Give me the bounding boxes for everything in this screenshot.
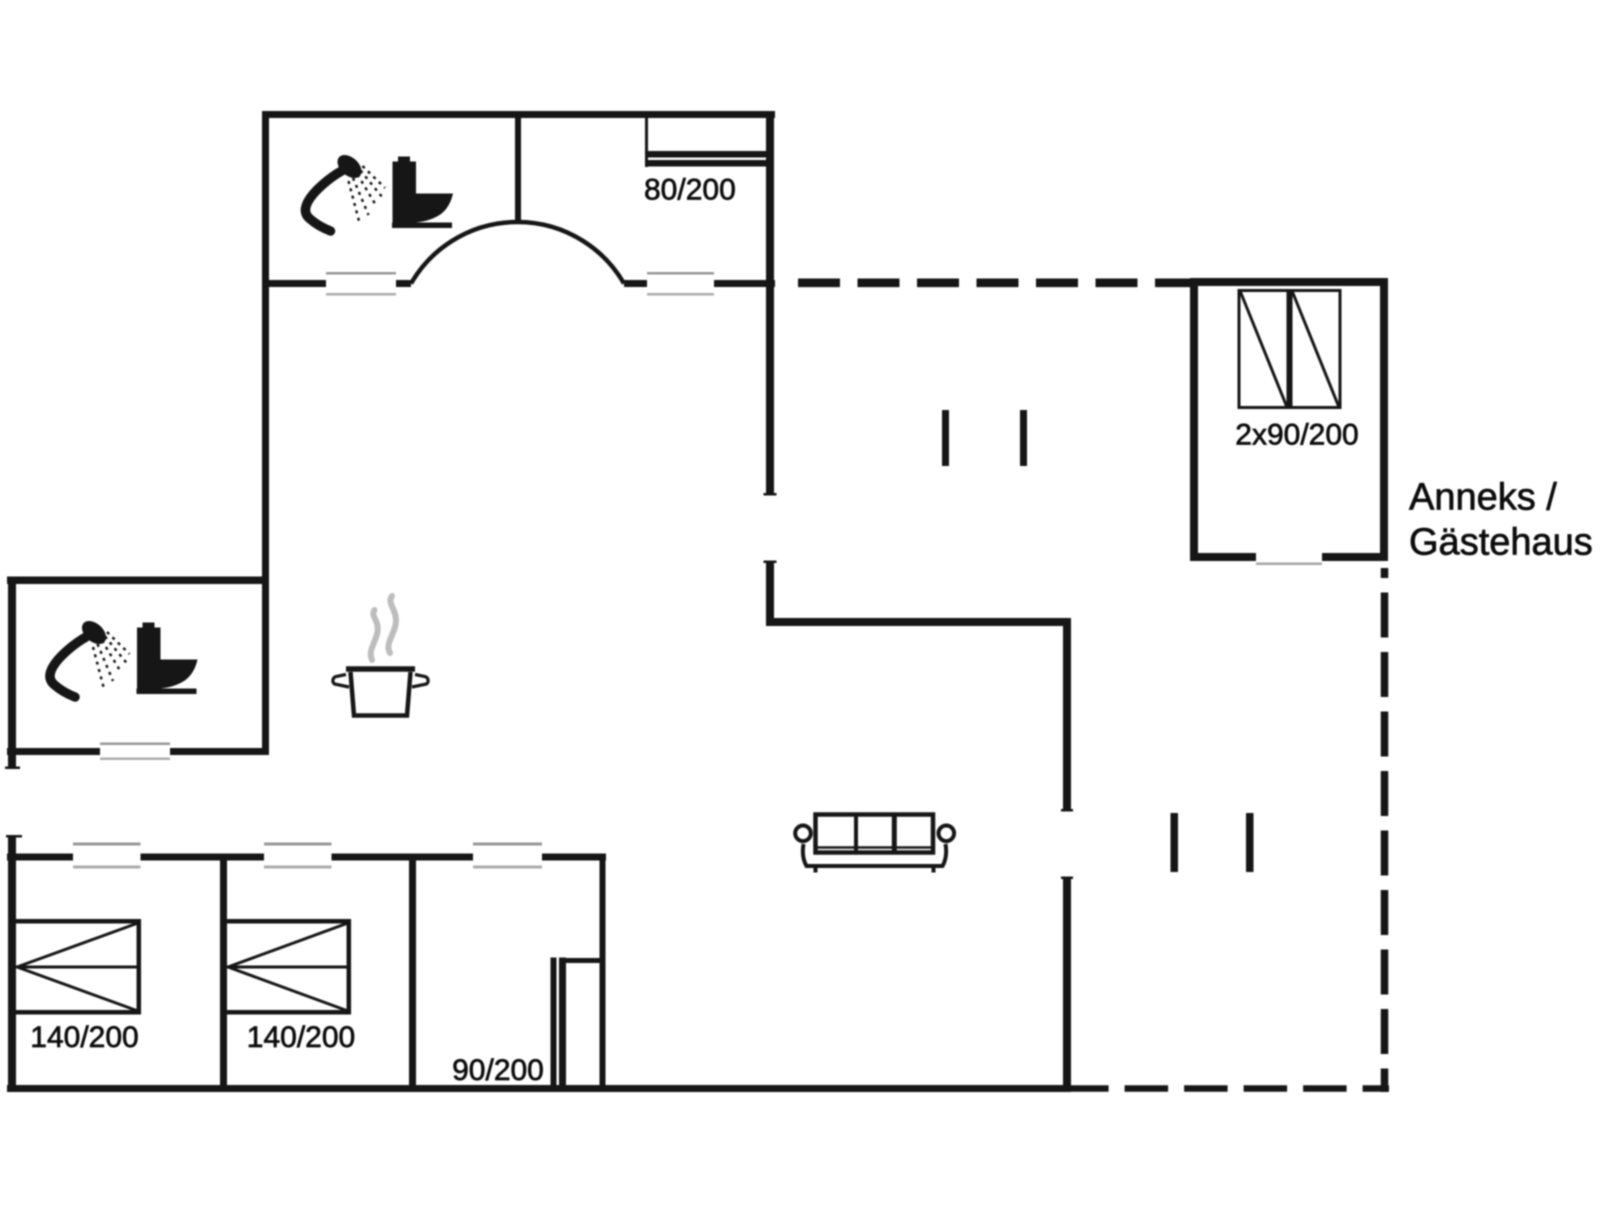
- svg-text:Gästehaus: Gästehaus: [1409, 522, 1593, 564]
- svg-text:140/200: 140/200: [30, 1021, 138, 1054]
- svg-text:90/200: 90/200: [452, 1054, 544, 1087]
- svg-text:140/200: 140/200: [247, 1021, 355, 1054]
- svg-text:2x90/200: 2x90/200: [1235, 419, 1358, 452]
- svg-text:80/200: 80/200: [644, 174, 736, 207]
- svg-text:Anneks /: Anneks /: [1409, 477, 1557, 519]
